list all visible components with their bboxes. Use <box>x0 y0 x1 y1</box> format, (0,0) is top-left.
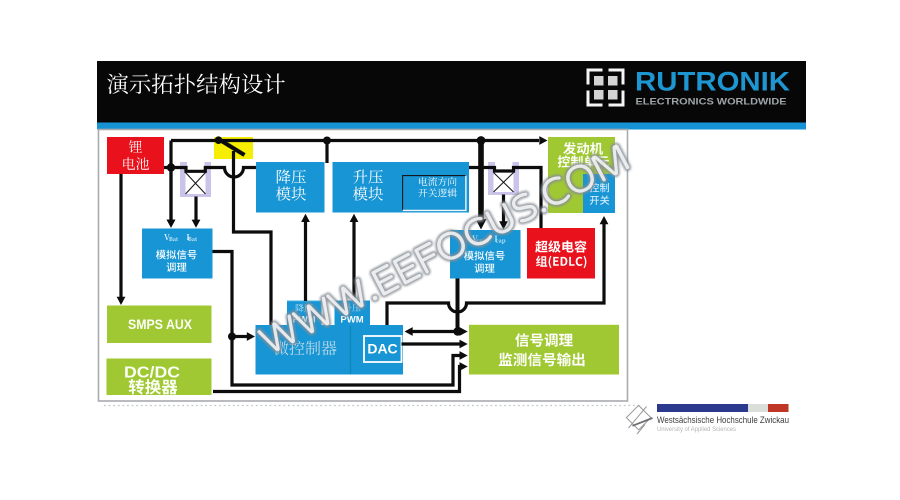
svg-text:RUTRONIK: RUTRONIK <box>635 67 791 97</box>
svg-text:Westsächsische Hochschule Zwic: Westsächsische Hochschule Zwickau <box>657 415 789 425</box>
svg-text:DC/DC: DC/DC <box>124 365 180 382</box>
svg-text:University of Applied Sciences: University of Applied Sciences <box>657 426 736 433</box>
svg-text:ELECTRONICS WORLDWIDE: ELECTRONICS WORLDWIDE <box>636 97 787 108</box>
svg-text:SMPS AUX: SMPS AUX <box>128 316 193 332</box>
svg-text:DAC: DAC <box>367 341 397 357</box>
